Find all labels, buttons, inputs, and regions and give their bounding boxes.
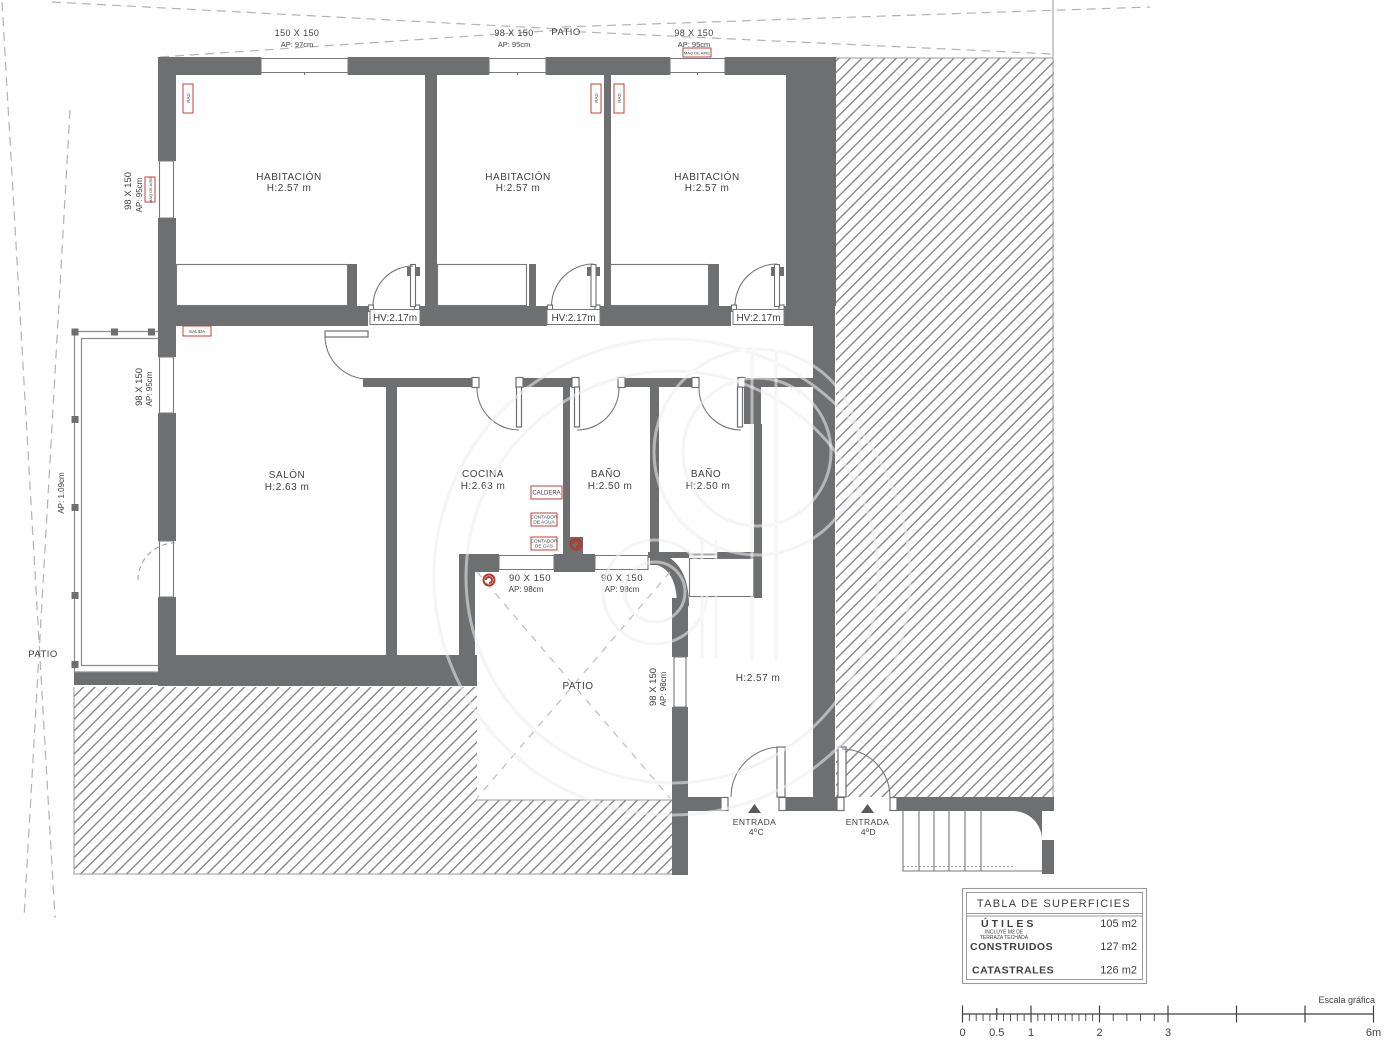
svg-text:2: 2 (1096, 1027, 1102, 1039)
svg-text:TABLA DE SUPERFICIES: TABLA DE SUPERFICIES (977, 898, 1131, 910)
svg-text:AP: 1.09cm: AP: 1.09cm (57, 472, 66, 514)
svg-text:ENTRADA: ENTRADA (733, 817, 776, 827)
svg-text:AP: 95cm: AP: 95cm (145, 371, 154, 406)
svg-text:CATASTRALES: CATASTRALES (972, 965, 1054, 977)
svg-text:AP: 95cm: AP: 95cm (135, 177, 144, 212)
svg-text:0: 0 (959, 1027, 965, 1039)
svg-text:SALÓN: SALÓN (269, 468, 305, 481)
svg-text:0.5: 0.5 (989, 1027, 1004, 1039)
svg-text:COCINA: COCINA (462, 469, 504, 480)
svg-text:AP: 97cm: AP: 97cm (281, 40, 314, 49)
svg-text:HABITACIÓN: HABITACIÓN (485, 170, 550, 183)
svg-text:105 m2: 105 m2 (1100, 918, 1137, 930)
svg-text:MAQ DE AIRE: MAQ DE AIRE (148, 177, 153, 203)
svg-text:98 X 150: 98 X 150 (648, 668, 659, 706)
svg-text:H:2.57 m: H:2.57 m (736, 673, 781, 684)
svg-text:150 X 150: 150 X 150 (275, 28, 320, 38)
svg-text:98 X 150: 98 X 150 (674, 28, 713, 38)
svg-text:90 X 150: 90 X 150 (509, 573, 551, 584)
svg-text:HV:2.17m: HV:2.17m (551, 313, 595, 324)
svg-text:PATIO: PATIO (562, 681, 593, 692)
svg-text:RAD: RAD (594, 93, 599, 103)
svg-text:Escala gráfica: Escala gráfica (1318, 995, 1375, 1005)
svg-text:DE GAS: DE GAS (535, 544, 553, 550)
svg-text:RAD: RAD (617, 93, 622, 103)
svg-text:HV:2.17m: HV:2.17m (373, 313, 417, 324)
svg-text:H:2.63 m: H:2.63 m (265, 482, 310, 493)
svg-text:BAÑO: BAÑO (691, 467, 721, 480)
svg-text:1: 1 (1028, 1027, 1034, 1039)
svg-text:HV:2.17m: HV:2.17m (736, 313, 780, 324)
svg-text:MAQ DE AIRE: MAQ DE AIRE (684, 51, 710, 56)
svg-text:CONSTRUIDOS: CONSTRUIDOS (970, 941, 1053, 953)
svg-text:HABITACIÓN: HABITACIÓN (674, 170, 739, 183)
svg-text:AP: 95cm: AP: 95cm (678, 40, 711, 49)
svg-text:H:2.57 m: H:2.57 m (496, 183, 541, 194)
svg-text:98 X 150: 98 X 150 (123, 172, 134, 210)
svg-text:CALDERA: CALDERA (532, 491, 560, 497)
svg-text:ENTRADA: ENTRADA (846, 817, 889, 827)
svg-text:98 X 150: 98 X 150 (494, 28, 533, 38)
svg-text:AP: 95cm: AP: 95cm (498, 40, 531, 49)
svg-text:PATIO: PATIO (551, 27, 581, 38)
svg-text:DE AGUA: DE AGUA (533, 520, 555, 526)
svg-text:H:2.63 m: H:2.63 m (461, 481, 506, 492)
svg-text:3: 3 (1165, 1027, 1171, 1039)
svg-text:HABITACIÓN: HABITACIÓN (256, 170, 321, 183)
svg-text:AP: 98cm: AP: 98cm (509, 585, 544, 594)
svg-text:98 X 150: 98 X 150 (134, 368, 145, 406)
svg-text:ÚTILES: ÚTILES (981, 917, 1036, 930)
svg-text:BAÑO: BAÑO (591, 467, 621, 480)
svg-text:127 m2: 127 m2 (1100, 941, 1137, 953)
svg-text:SALIDA: SALIDA (189, 329, 205, 334)
svg-text:AP: 98cm: AP: 98cm (659, 671, 668, 706)
svg-text:PATIO: PATIO (28, 649, 58, 660)
svg-text:AP: 98cm: AP: 98cm (605, 585, 640, 594)
svg-text:4ºD: 4ºD (861, 827, 876, 837)
svg-text:H:2.50 m: H:2.50 m (588, 481, 633, 492)
svg-text:126 m2: 126 m2 (1100, 965, 1137, 977)
svg-text:H:2.57 m: H:2.57 m (267, 183, 312, 194)
svg-text:H:2.57 m: H:2.57 m (685, 183, 730, 194)
svg-text:RAD: RAD (186, 93, 191, 103)
svg-text:4ºC: 4ºC (749, 827, 764, 837)
svg-text:6m: 6m (1366, 1027, 1381, 1039)
